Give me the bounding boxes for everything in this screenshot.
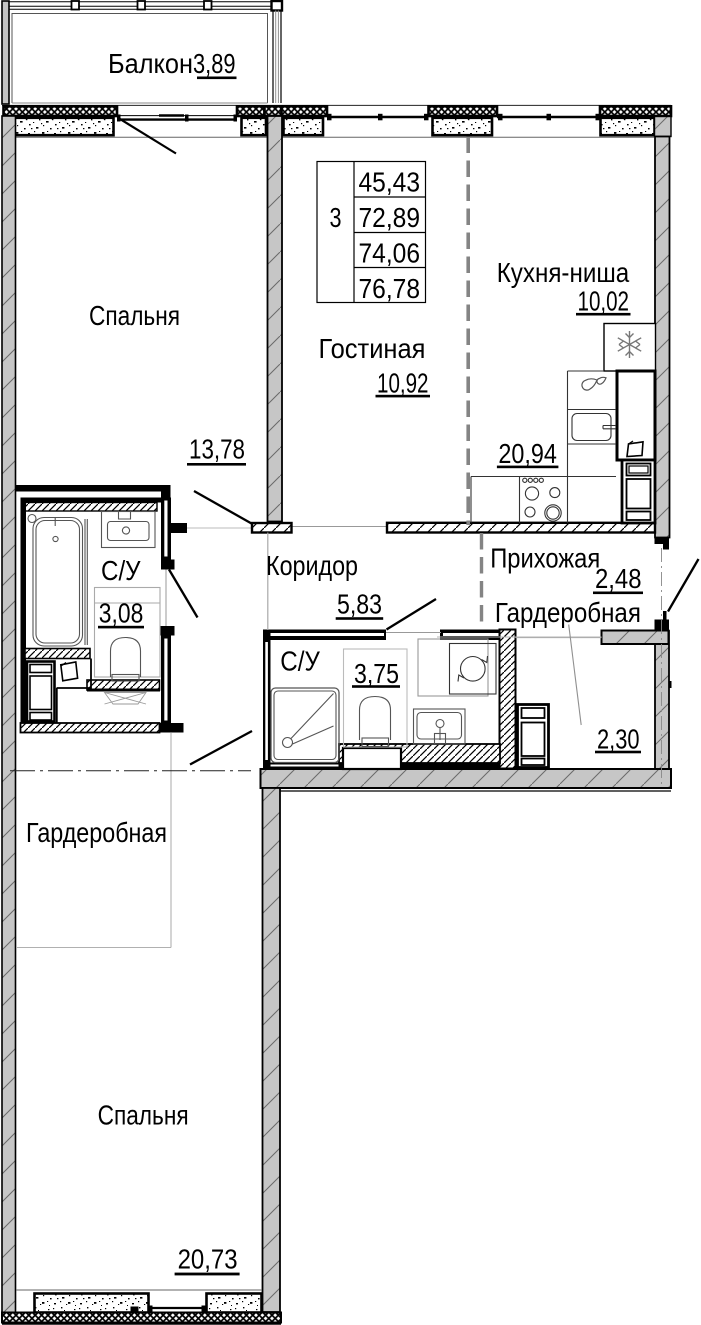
svg-text:10,02: 10,02	[578, 286, 630, 317]
svg-text:Спальня: Спальня	[98, 1099, 189, 1130]
svg-text:Гардеробная: Гардеробная	[495, 597, 641, 628]
svg-text:3,75: 3,75	[354, 658, 399, 689]
svg-text:45,43: 45,43	[359, 167, 421, 198]
svg-text:3: 3	[330, 202, 342, 233]
svg-text:20,73: 20,73	[178, 1244, 238, 1275]
svg-text:13,78: 13,78	[189, 434, 245, 465]
svg-text:2,48: 2,48	[595, 563, 642, 594]
svg-text:20,94: 20,94	[498, 438, 557, 469]
svg-text:Коридор: Коридор	[266, 550, 358, 581]
svg-text:С/У: С/У	[101, 555, 141, 586]
svg-text:5,83: 5,83	[337, 589, 382, 620]
svg-text:76,78: 76,78	[359, 273, 421, 304]
svg-text:2,30: 2,30	[597, 724, 640, 755]
svg-text:Гардеробная: Гардеробная	[26, 817, 167, 848]
svg-text:Спальня: Спальня	[89, 300, 180, 331]
svg-text:10,92: 10,92	[377, 368, 429, 399]
svg-text:Балкон: Балкон	[108, 48, 193, 79]
svg-text:3,89: 3,89	[193, 48, 236, 79]
svg-text:Прихожая: Прихожая	[490, 543, 600, 574]
svg-text:Гостиная: Гостиная	[319, 333, 426, 364]
svg-text:С/У: С/У	[280, 645, 320, 676]
svg-text:72,89: 72,89	[359, 202, 421, 233]
svg-text:Кухня-ниша: Кухня-ниша	[497, 257, 630, 288]
svg-text:3,08: 3,08	[99, 597, 144, 628]
svg-text:74,06: 74,06	[359, 238, 421, 269]
